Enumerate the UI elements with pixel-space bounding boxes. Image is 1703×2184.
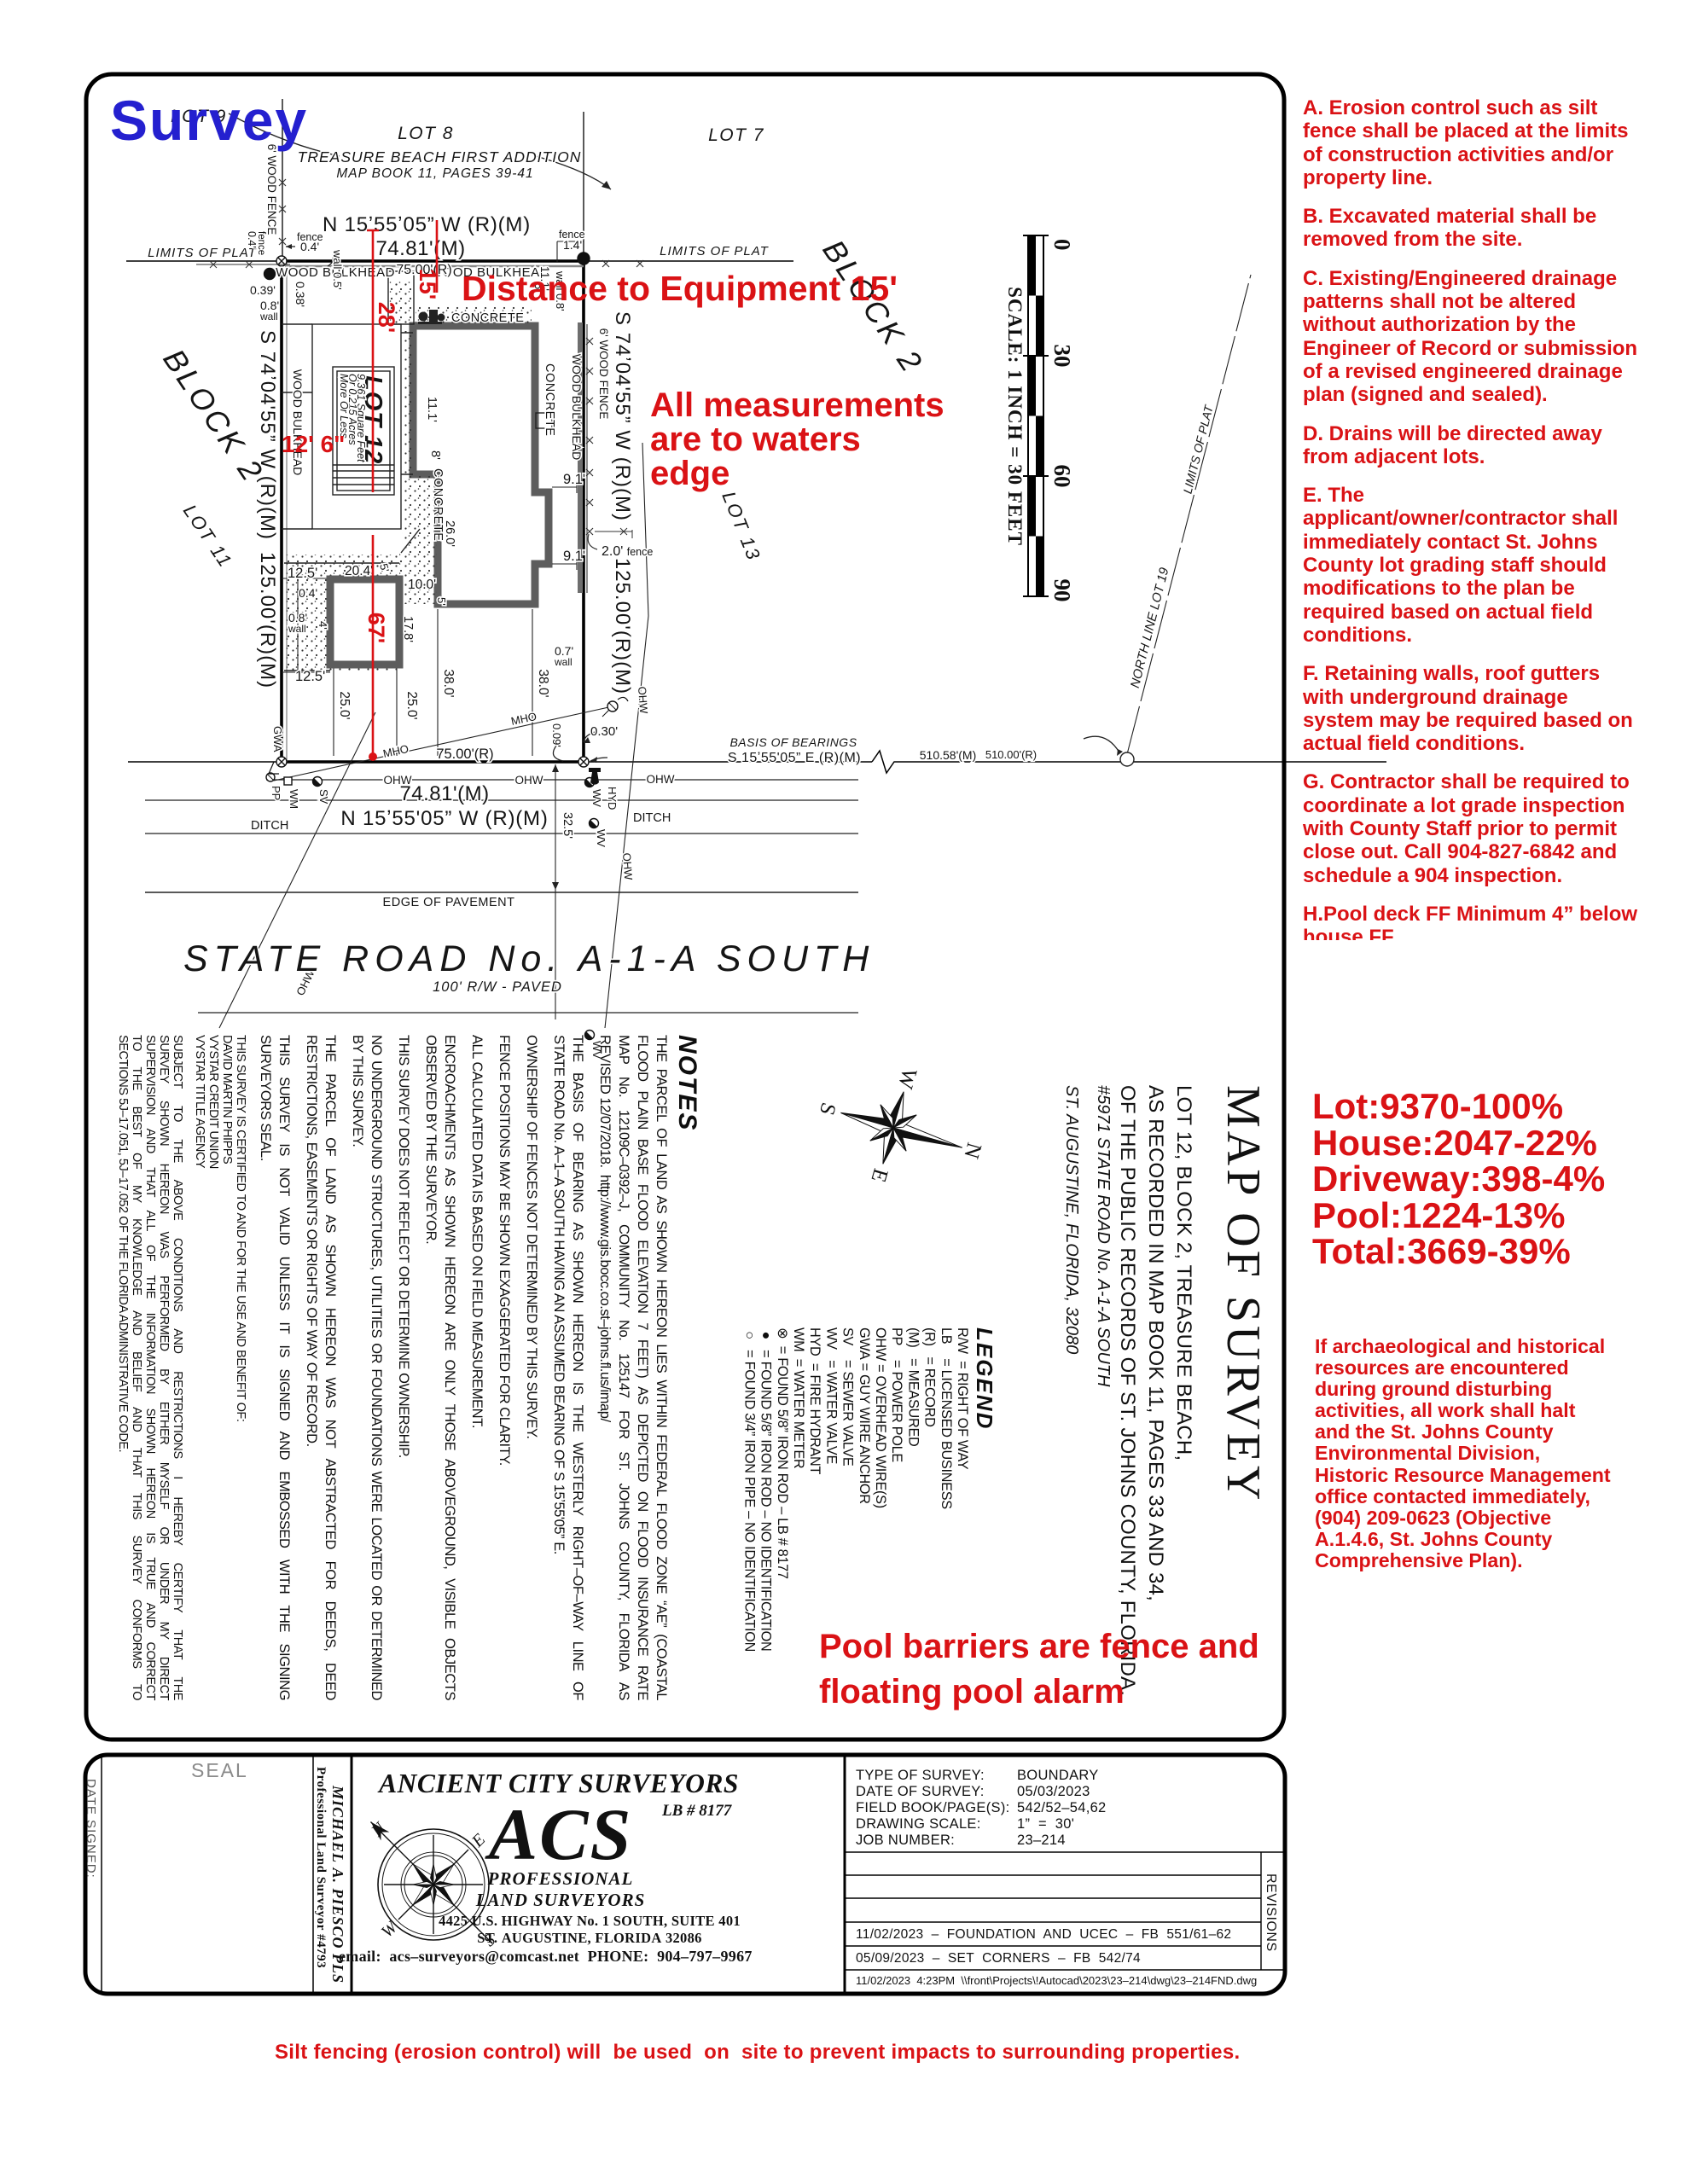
svg-text:0.30': 0.30' bbox=[590, 724, 618, 739]
svg-text:SCALE: 1 INCH = 30 FEET: SCALE: 1 INCH = 30 FEET bbox=[1004, 287, 1026, 546]
svg-text:74.81'(M): 74.81'(M) bbox=[375, 237, 465, 260]
svg-text:OHW: OHW bbox=[647, 773, 675, 786]
svg-text:25.0': 25.0' bbox=[404, 691, 419, 719]
svg-text:S 74ʼ04'55” W (R)(M): S 74ʼ04'55” W (R)(M) bbox=[611, 311, 634, 521]
svg-text:WOOD BULKHEAD: WOOD BULKHEAD bbox=[291, 369, 305, 475]
svg-text:74.81'(M): 74.81'(M) bbox=[399, 782, 489, 805]
svg-text:10.0': 10.0' bbox=[408, 578, 436, 592]
svg-text:75.00'(R): 75.00'(R) bbox=[436, 746, 493, 762]
svg-text:HYD: HYD bbox=[606, 787, 619, 810]
svg-text:wall: wall bbox=[259, 311, 278, 322]
svg-text:12.5': 12.5' bbox=[288, 566, 317, 581]
svg-text:S 74ʼ04'55” W (R)(M): S 74ʼ04'55” W (R)(M) bbox=[256, 330, 279, 540]
svg-text:MHO: MHO bbox=[382, 742, 410, 760]
svg-text:N 15ʼ55ʼ05” W (R)(M): N 15ʼ55ʼ05” W (R)(M) bbox=[323, 213, 531, 236]
svg-text:15': 15' bbox=[415, 269, 440, 299]
svg-text:4': 4' bbox=[317, 621, 329, 630]
svg-text:0.39': 0.39' bbox=[250, 283, 276, 297]
svg-text:LIMITS OF PLAT: LIMITS OF PLAT bbox=[1181, 403, 1217, 495]
svg-text:BASIS OF BEARINGS: BASIS OF BEARINGS bbox=[729, 735, 857, 749]
svg-text:6' WOOD FENCE: 6' WOOD FENCE bbox=[597, 328, 610, 420]
svg-text:12.5': 12.5' bbox=[295, 669, 325, 684]
svg-text:OHW: OHW bbox=[620, 852, 635, 880]
svg-text:S: S bbox=[815, 1100, 840, 1118]
svg-text:LIMITS OF PLAT: LIMITS OF PLAT bbox=[660, 244, 769, 258]
svg-text:9.1': 9.1' bbox=[563, 472, 585, 487]
svg-text:20.4': 20.4' bbox=[345, 564, 373, 578]
svg-text:60: 60 bbox=[1049, 465, 1075, 488]
svg-text:N 15ʼ55'05” W (R)(M): N 15ʼ55'05” W (R)(M) bbox=[340, 807, 548, 830]
svg-text:WM: WM bbox=[288, 789, 300, 809]
svg-text:38.0': 38.0' bbox=[536, 669, 550, 697]
svg-text:0.09': 0.09' bbox=[550, 723, 563, 747]
svg-text:CONCRETE: CONCRETE bbox=[451, 311, 524, 325]
svg-text:wall: wall bbox=[288, 623, 306, 635]
svg-text:26.0': 26.0' bbox=[443, 520, 456, 547]
svg-text:12' 6": 12' 6" bbox=[282, 431, 345, 457]
svg-text:LIMITS OF PLAT: LIMITS OF PLAT bbox=[148, 246, 257, 260]
svg-text:S 15ʼ55'05” E (R)(M): S 15ʼ55'05” E (R)(M) bbox=[728, 751, 861, 765]
svg-text:PP: PP bbox=[270, 786, 282, 800]
svg-text:STATE ROAD No. A-1-A SOUTH: STATE ROAD No. A-1-A SOUTH bbox=[183, 938, 875, 979]
svg-text:100' R/W - PAVED: 100' R/W - PAVED bbox=[433, 979, 562, 995]
svg-text:5': 5' bbox=[435, 597, 448, 606]
svg-text:W: W bbox=[378, 1917, 403, 1942]
svg-text:WV: WV bbox=[595, 829, 607, 847]
svg-text:125.00'(R)(M): 125.00'(R)(M) bbox=[256, 552, 279, 688]
svg-text:0.4': 0.4' bbox=[246, 231, 258, 248]
svg-text:125.00'(R)(M): 125.00'(R)(M) bbox=[611, 558, 634, 694]
svg-text:2.0' fence: 2.0' fence bbox=[602, 544, 653, 559]
svg-text:W: W bbox=[893, 1066, 921, 1092]
svg-text:OHW: OHW bbox=[636, 686, 650, 714]
svg-text:wall 0.5': wall 0.5' bbox=[331, 249, 344, 290]
svg-text:30: 30 bbox=[1049, 345, 1075, 368]
svg-text:17.8': 17.8' bbox=[401, 616, 415, 642]
svg-text:0.38': 0.38' bbox=[294, 282, 307, 307]
svg-text:E: E bbox=[866, 1166, 892, 1185]
svg-text:SV: SV bbox=[317, 789, 330, 804]
svg-text:MAP BOOK 11, PAGES 39-41: MAP BOOK 11, PAGES 39-41 bbox=[336, 166, 533, 181]
svg-text:DITCH: DITCH bbox=[251, 819, 288, 833]
svg-text:1.4': 1.4' bbox=[563, 238, 582, 252]
svg-text:MHO: MHO bbox=[510, 710, 538, 728]
svg-text:N: N bbox=[959, 1140, 985, 1161]
svg-text:LOT 13: LOT 13 bbox=[718, 489, 764, 565]
svg-text:NORTH LINE LOT 19: NORTH LINE LOT 19 bbox=[1128, 566, 1172, 689]
svg-text:0.4': 0.4' bbox=[299, 586, 317, 600]
svg-text:0: 0 bbox=[1049, 239, 1075, 251]
svg-text:28': 28' bbox=[374, 302, 399, 333]
svg-text:GWA: GWA bbox=[271, 726, 284, 752]
svg-text:510.58'(M): 510.58'(M) bbox=[920, 748, 976, 762]
svg-text:9.1': 9.1' bbox=[563, 549, 585, 564]
svg-text:BLOCK 2: BLOCK 2 bbox=[156, 343, 271, 490]
svg-text:67': 67' bbox=[363, 613, 389, 643]
svg-text:11.1': 11.1' bbox=[425, 397, 439, 422]
svg-text:wall: wall bbox=[554, 656, 573, 668]
svg-text:90: 90 bbox=[1049, 579, 1075, 602]
svg-text:38.0': 38.0' bbox=[441, 669, 456, 697]
svg-text:CONCRETE: CONCRETE bbox=[543, 363, 556, 436]
svg-text:More Or Less: More Or Less bbox=[338, 374, 350, 439]
svg-text:6' WOOD FENCE: 6' WOOD FENCE bbox=[265, 144, 278, 235]
svg-text:EDGE OF PAVEMENT: EDGE OF PAVEMENT bbox=[383, 896, 515, 909]
svg-text:CONCRETE: CONCRETE bbox=[431, 468, 445, 541]
svg-text:TREASURE BEACH FIRST ADDITION: TREASURE BEACH FIRST ADDITION bbox=[298, 148, 582, 166]
svg-text:WOOD BULKHEAD: WOOD BULKHEAD bbox=[570, 354, 584, 460]
svg-text:25.0': 25.0' bbox=[337, 691, 352, 719]
svg-text:WV: WV bbox=[590, 789, 603, 807]
svg-text:LOT 7: LOT 7 bbox=[708, 125, 764, 145]
svg-text:OHW: OHW bbox=[515, 774, 543, 787]
svg-text:DITCH: DITCH bbox=[633, 811, 671, 825]
svg-text:8': 8' bbox=[428, 450, 442, 460]
svg-text:LOT 8: LOT 8 bbox=[398, 124, 454, 143]
svg-text:510.00'(R): 510.00'(R) bbox=[985, 748, 1037, 761]
svg-text:fence: fence bbox=[256, 231, 266, 255]
svg-text:LOT 11: LOT 11 bbox=[179, 501, 237, 572]
svg-text:32.5': 32.5' bbox=[561, 812, 574, 839]
svg-text:0.4': 0.4' bbox=[300, 240, 319, 253]
